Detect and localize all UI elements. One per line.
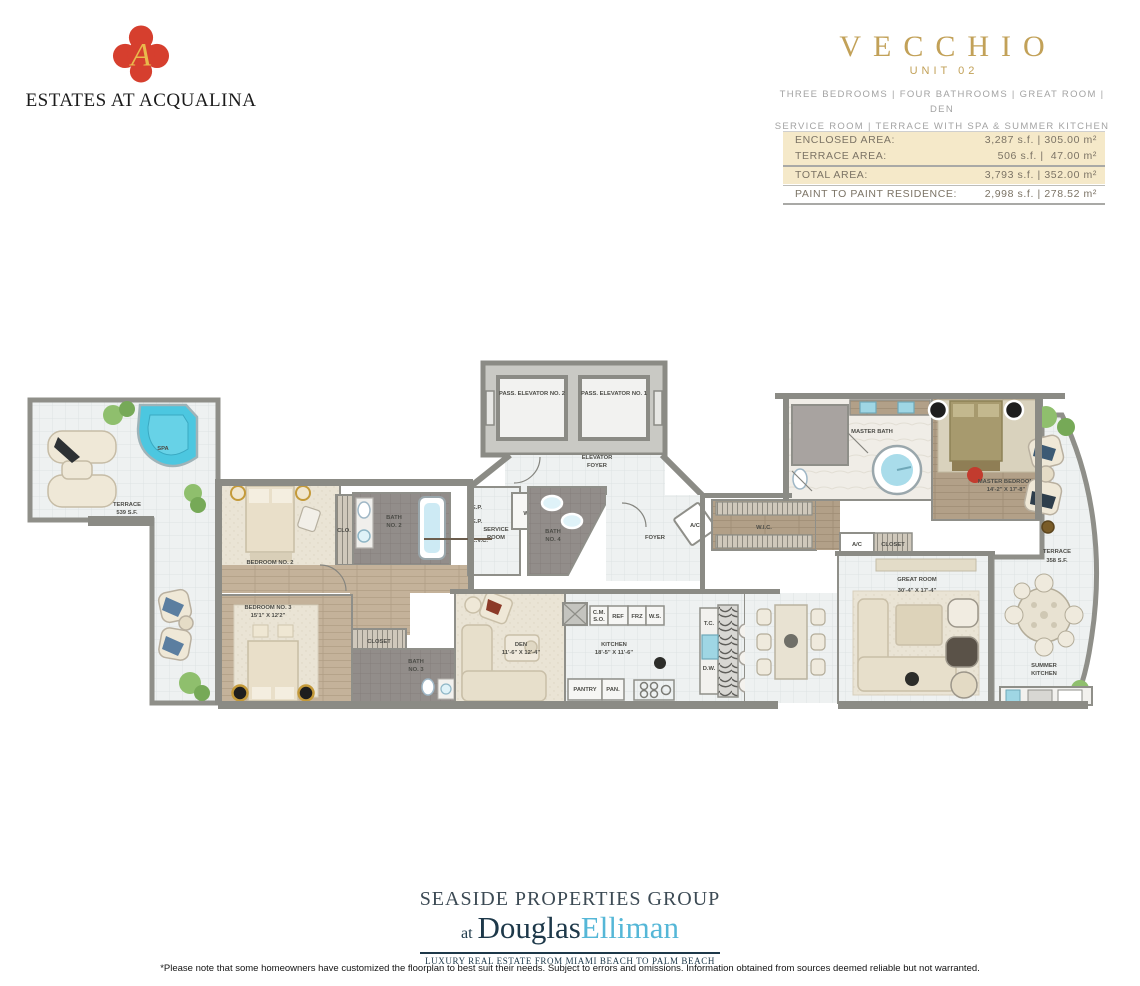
elevator-1-label: PASS. ELEVATOR NO. 1: [581, 391, 648, 397]
console: [876, 559, 976, 571]
figure: [905, 672, 919, 686]
great-room-dim: 30'-4" X 17'-4": [898, 588, 937, 594]
elevator-foyer-label: ELEVATOR: [582, 455, 613, 461]
pantry-label: PANTRY: [573, 687, 596, 693]
master-bedroom-dim: 14'-2" X 17'-8": [987, 487, 1026, 493]
tc-label: T.C.: [704, 621, 715, 627]
great-room-label: GREAT ROOM: [897, 577, 937, 583]
table-row: PAINT TO PAINT RESIDENCE: 2,998 s.f. | 2…: [783, 187, 1105, 204]
floorplan-drawing: SPA TERRACE 539 S: [0, 353, 1140, 715]
row-value: 3,793 s.f. | 352.00 m²: [985, 169, 1097, 183]
row-label: TERRACE AREA:: [795, 150, 887, 164]
foyer-label: FOYER: [645, 535, 666, 541]
closet-label: CLOSET: [881, 542, 905, 548]
disclaimer-text: *Please note that some homeowners have c…: [0, 963, 1140, 974]
wall: [662, 455, 702, 495]
douglas-text: Douglas: [478, 910, 581, 945]
terrace-left: SPA TERRACE 539 S: [30, 400, 218, 703]
row-value: 2,998 s.f. | 278.52 m²: [985, 188, 1097, 202]
sink: [898, 402, 914, 413]
plan-features-line1: THREE BEDROOMS | FOUR BATHROOMS | GREAT …: [772, 87, 1112, 117]
bath-2: BATH NO. 2: [353, 493, 450, 565]
elevator-2-label: PASS. ELEVATOR NO. 2: [499, 391, 565, 397]
at-text: at: [461, 925, 473, 942]
bath-4-label2: NO. 4: [545, 537, 561, 543]
hallway: [816, 500, 840, 550]
terrace-left-label: TERRACE: [113, 502, 141, 508]
footer-rule: [420, 952, 721, 954]
elevator-foyer-label2: FOYER: [587, 463, 608, 469]
kitchen: C.M. S.O. REF FRZ W.S. PANTRY PAN. KITCH…: [563, 593, 753, 703]
pan-label: PAN.: [606, 687, 620, 693]
shower: [792, 405, 848, 465]
elevator-block: PASS. ELEVATOR NO. 2 PASS. ELEVATOR NO. …: [483, 363, 665, 455]
toilet: [358, 502, 370, 518]
sink: [860, 402, 876, 413]
table-divider: [783, 185, 1105, 186]
row-value: 3,287 s.f. | 305.00 m²: [985, 134, 1097, 148]
floorplan-sheet: A ESTATES AT ACQUALINA VECCHIO UNIT 02 T…: [0, 0, 1140, 986]
ac-closet-2: A/C CLOSET: [840, 533, 912, 553]
plan-unit: UNIT 02: [772, 65, 1112, 77]
bedroom-2-closet: CLO.: [336, 495, 353, 565]
bath-3: BATH NO. 3: [352, 649, 455, 703]
logo-monogram: A: [129, 38, 152, 74]
terrace-right-label: TERRACE: [1043, 549, 1071, 555]
cm-so-label: C.M.: [593, 610, 606, 616]
ref-label: REF: [612, 614, 624, 620]
table-divider: [783, 203, 1105, 205]
sink: [562, 514, 582, 528]
footer-brand: SEASIDE PROPERTIES GROUP atDouglasEllima…: [0, 888, 1140, 969]
seaside-properties-group: SEASIDE PROPERTIES GROUP: [420, 888, 721, 911]
brand-block: A ESTATES AT ACQUALINA: [10, 24, 272, 112]
bath-2-label: BATH: [386, 515, 402, 521]
den-label: DEN: [515, 642, 527, 648]
elevator-car-1: [580, 377, 648, 439]
acqualina-logo-icon: A: [112, 24, 170, 84]
service-room-label: SERVICE: [483, 527, 508, 533]
wic: W.I.C.: [712, 500, 816, 550]
kitchen-label: KITCHEN: [601, 642, 627, 648]
elliman-text: Elliman: [581, 910, 679, 945]
row-label: PAINT TO PAINT RESIDENCE:: [795, 188, 957, 202]
row-value: 506 s.f. | 47.00 m²: [998, 150, 1097, 164]
bedroom-3-closet: CLOSET: [352, 629, 406, 649]
den-dim: 11'-6" X 12'-4": [502, 650, 540, 656]
sink: [358, 530, 370, 542]
wall: [88, 516, 154, 526]
cm-so-label2: S.O.: [593, 617, 605, 623]
table-row: TERRACE AREA: 506 s.f. | 47.00 m²: [783, 149, 1105, 166]
sink: [1006, 690, 1020, 702]
bath-4: BATH NO. 4: [528, 487, 606, 575]
sink: [441, 684, 451, 694]
wic-label: W.I.C.: [756, 525, 772, 531]
frz-label: FRZ: [631, 614, 643, 620]
elevator-car-2: [498, 377, 566, 439]
great-room: GREAT ROOM 30'-4" X 17'-4": [838, 555, 992, 703]
douglas-elliman-logo: atDouglasElliman: [420, 911, 721, 951]
hallway: [220, 565, 470, 593]
summer-kitchen-label2: KITCHEN: [1031, 671, 1057, 677]
table-row: ENCLOSED AREA: 3,287 s.f. | 305.00 m²: [783, 132, 1105, 149]
den: DEN 11'-6" X 12'-4": [455, 591, 565, 703]
master-bath: MASTER BATH: [786, 398, 932, 500]
toilet: [422, 679, 434, 695]
armchairs: [946, 599, 978, 698]
master-bath-label: MASTER BATH: [851, 429, 893, 435]
appliance-row: C.M. S.O. REF FRZ W.S.: [590, 606, 664, 625]
closet-label: CLO.: [337, 528, 351, 534]
bedroom-3-dim: 15'1" X 12'2": [251, 613, 286, 619]
bedroom-3: BEDROOM NO. 3 15'1" X 12'2": [220, 595, 352, 703]
dining-area: [745, 593, 838, 703]
bedroom-3-label: BEDROOM NO. 3: [244, 605, 292, 611]
bath-4-label: BATH: [545, 529, 561, 535]
stool: [654, 657, 666, 669]
plan-title: VECCHIO: [772, 30, 1112, 64]
table-row: TOTAL AREA: 3,793 s.f. | 352.00 m²: [783, 167, 1105, 184]
sink: [542, 496, 562, 510]
plan-header: VECCHIO UNIT 02 THREE BEDROOMS | FOUR BA…: [772, 30, 1112, 134]
area-table: ENCLOSED AREA: 3,287 s.f. | 305.00 m² TE…: [783, 131, 1105, 205]
bath-3-label: BATH: [408, 659, 424, 665]
bath-3-label2: NO. 3: [408, 667, 424, 673]
brand-name: ESTATES AT ACQUALINA: [10, 90, 272, 112]
sink: [702, 635, 718, 659]
dw-label: D.W.: [703, 666, 716, 672]
row-label: TOTAL AREA:: [795, 169, 868, 183]
summer-kitchen-label: SUMMER: [1031, 663, 1058, 669]
closet-label: CLOSET: [367, 639, 391, 645]
ws-label: W.S.: [649, 614, 662, 620]
terrace-left-area: 539 S.F.: [116, 510, 138, 516]
bath-2-label2: NO. 2: [386, 523, 401, 529]
ac-label: A/C: [852, 542, 863, 548]
master-bedroom-label: MASTER BEDROOM: [978, 479, 1035, 485]
spa-label: SPA: [157, 446, 169, 452]
terrace-right-area: 358 S.F.: [1046, 558, 1068, 564]
row-label: ENCLOSED AREA:: [795, 134, 895, 148]
wall: [470, 455, 510, 487]
kitchen-dim: 18'-5" X 11'-6": [595, 650, 633, 656]
ac-label: A/C: [690, 523, 701, 529]
